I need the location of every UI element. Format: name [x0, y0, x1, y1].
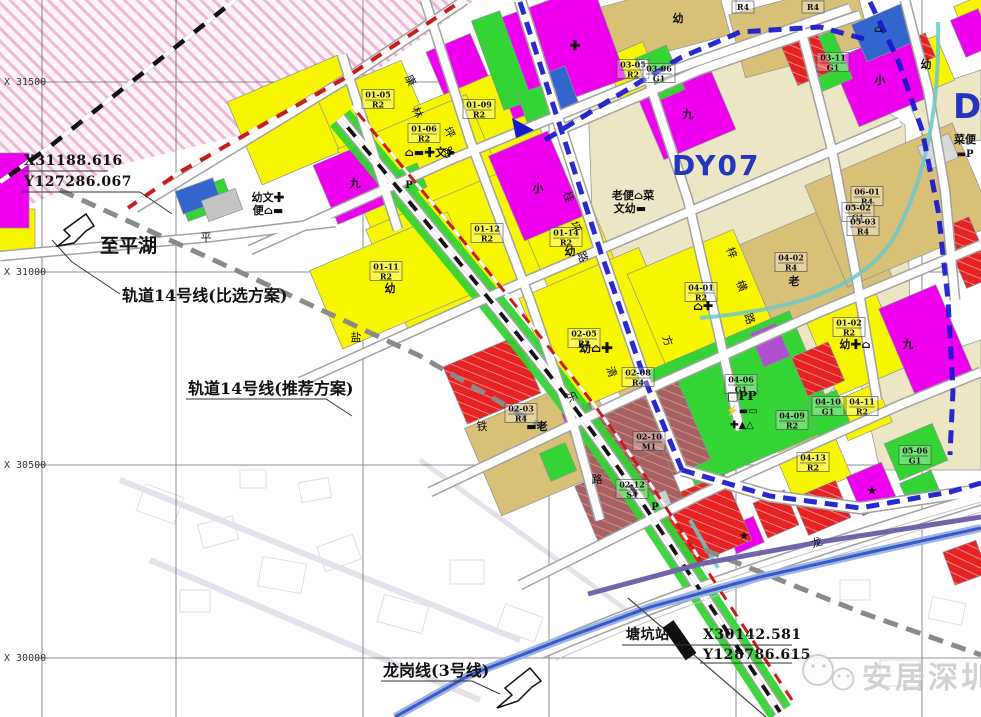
facility-label: ★	[740, 531, 749, 542]
facility-label: 九	[682, 107, 694, 121]
parcel-class: R4	[632, 378, 645, 388]
parcel-class: S4	[626, 490, 638, 500]
parcel-code: 02-12	[619, 480, 645, 490]
facility-label: 小	[532, 181, 544, 195]
parcel-label: 04-13R2	[797, 453, 829, 473]
parcel-code: 04-09	[779, 411, 805, 421]
facility-label: ✚	[570, 39, 581, 54]
planning-map: X 31500 X 31000 X 30500 X 30000	[0, 0, 981, 717]
parcel-code: 01-09	[466, 100, 492, 110]
to-pinghu-arrow	[58, 214, 94, 246]
parcel-class: R2	[627, 70, 639, 80]
parcel-label: 03-11G1	[817, 53, 849, 73]
parcel-code: 06-01	[854, 187, 880, 197]
parcel-label: 01-11R2	[370, 262, 402, 282]
parcel-code: 02-03	[508, 404, 534, 414]
parcel-label: 01-12R2	[471, 224, 503, 244]
parcel-code: 04-10	[815, 397, 841, 407]
watermark: 安居深圳	[803, 655, 981, 696]
parcel-class: R2	[481, 234, 493, 244]
parcel-class: R2	[418, 134, 430, 144]
parcel-class: R2	[856, 407, 868, 417]
parcel-label: 02-12S4	[616, 480, 648, 500]
parcel-label: 03-06G1	[643, 64, 675, 84]
road-name-char: 平	[201, 231, 212, 244]
parcel-label: 04-09R2	[776, 411, 808, 431]
parcel-code: 04-13	[800, 453, 826, 463]
grid-label-31500: X 31500	[4, 77, 46, 88]
coord-se-x: X30142.581	[703, 627, 802, 643]
parcel-class: R4	[785, 263, 798, 273]
facility-label: 便⌂▬	[253, 203, 284, 217]
facility-label: 九	[902, 337, 914, 351]
facility-label: 文幼▬	[614, 201, 646, 215]
parcel-class: G1	[827, 63, 839, 73]
facility-label: R4	[737, 2, 750, 12]
facility-label: 幼	[673, 11, 684, 25]
parcel-label: 04-11R2	[846, 397, 878, 417]
facility-label: 幼	[565, 244, 576, 258]
district-dy-edge-label: DY	[953, 87, 981, 127]
parcel-class: R2	[843, 328, 855, 338]
facility-label: 小	[874, 73, 886, 87]
parcel-code: 05-03	[850, 217, 876, 227]
coord-nw-y: Y127286.067	[23, 174, 132, 190]
map-canvas: X 31500 X 31000 X 30500 X 30000	[0, 0, 981, 717]
facility-label: 菜便	[953, 132, 977, 146]
parcel-label: 02-10M1	[633, 432, 665, 452]
facility-label: ✚▲△	[730, 420, 754, 431]
parcel-code: 01-11	[373, 262, 399, 272]
parcel-code: 03-05	[620, 60, 646, 70]
facility-label: ▬P	[957, 149, 974, 160]
longgang-line-label: 龙岗线(3号线)	[382, 661, 489, 680]
facility-label: 老便⌂菜	[611, 188, 655, 202]
road-name-char: 铁	[477, 420, 488, 433]
road-name-char: 路	[592, 473, 603, 486]
parcel-class: R2	[372, 100, 384, 110]
parcel-label: 02-08R4	[622, 368, 654, 388]
parcel-class: G1	[909, 456, 921, 466]
parcel-label: 01-05R2	[362, 90, 394, 110]
parcel-label: 01-09R2	[463, 100, 495, 120]
facility-label: 九	[349, 176, 361, 190]
parcel-class: R2	[786, 421, 798, 431]
facility-label: ⌂	[874, 24, 882, 35]
parcel-code: 04-01	[688, 283, 714, 293]
facility-label: □PP	[727, 389, 756, 403]
parcel-label: 04-02R4	[775, 253, 807, 273]
facility-label: 老	[788, 274, 800, 288]
parcel-code: 04-02	[778, 253, 804, 263]
parcel-class: M1	[642, 442, 656, 452]
grid-label-30500: X 30500	[4, 460, 46, 471]
facility-label: ▬老	[526, 419, 547, 433]
parcel-class: R4	[857, 227, 870, 237]
facility-label: 幼文✚	[252, 190, 285, 204]
to-pinghu-label: 至平湖	[100, 235, 157, 257]
coord-nw-x: X31188.616	[24, 153, 123, 169]
parcel-label: 05-06G1	[899, 446, 931, 466]
parcel-class: R2	[473, 110, 485, 120]
facility-label: 幼	[385, 281, 396, 295]
facility-label: ⚡▬▭	[726, 404, 757, 417]
parcel-label: 04-10G1	[812, 397, 844, 417]
facility-label: P	[405, 180, 413, 191]
parcel-code: 01-05	[365, 90, 391, 100]
parcel-label: 01-06R2	[408, 124, 440, 144]
facility-label: P	[651, 502, 659, 513]
parcel-code: 02-08	[625, 368, 651, 378]
parcel-class: G1	[653, 74, 665, 84]
rail14-alt-label: 轨道14号线(比选方案)	[122, 286, 287, 305]
parcel-code: 01-06	[411, 124, 437, 134]
district-dy07-label: DY07	[672, 149, 760, 182]
wechat-logo-icon	[803, 655, 833, 685]
parcel-code: 02-10	[636, 432, 662, 442]
parcel-code: 01-12	[474, 224, 500, 234]
facility-label: ★	[868, 486, 877, 497]
rail14-rec-label: 轨道14号线(推荐方案)	[188, 379, 353, 398]
facility-label: 幼	[921, 57, 932, 71]
longgang-arrow	[497, 668, 541, 708]
coord-se-y: Y128786.615	[702, 647, 811, 663]
facility-label: 幼⌂✚	[579, 340, 613, 355]
facility-label: 幼✚⌂	[839, 337, 870, 351]
road-name-char: 盐	[351, 331, 362, 344]
parcel-code: 01-02	[836, 318, 862, 328]
parcel-code: 02-05	[571, 329, 597, 339]
parcel-class: G1	[822, 407, 834, 417]
parcel-code: 04-11	[849, 397, 875, 407]
grid-label-31000: X 31000	[4, 267, 46, 278]
station-label: 塘坑站	[626, 626, 670, 643]
parcel-code: 03-06	[646, 64, 672, 74]
parcel-code: 05-02	[845, 203, 871, 213]
parcel-label: 05-03R4	[847, 217, 879, 237]
facility-label: R4	[807, 2, 820, 12]
parcel-code: 03-11	[820, 53, 846, 63]
parcel-class: R2	[807, 463, 819, 473]
facility-label: ⌂✚	[693, 299, 713, 313]
parcel-code: 04-06	[728, 375, 754, 385]
parcel-code: 05-06	[902, 446, 928, 456]
watermark-text: 安居深圳	[862, 661, 981, 696]
parcel-class: R2	[380, 272, 392, 282]
grid-label-30000: X 30000	[4, 653, 46, 664]
parcel-label: 01-02R2	[833, 318, 865, 338]
